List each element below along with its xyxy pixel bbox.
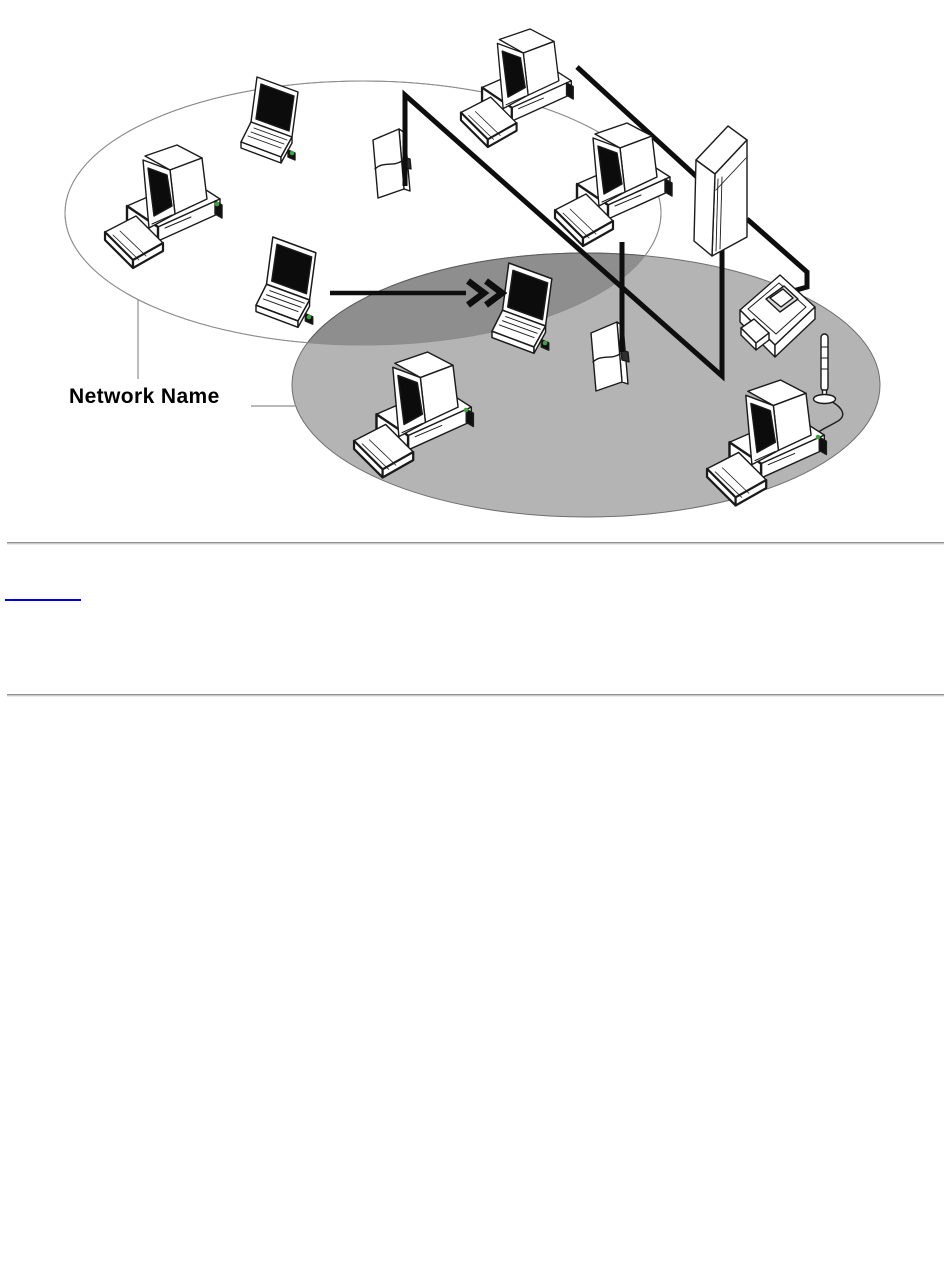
horizontal-rule-bottom	[7, 694, 944, 697]
network-name-label: Network Name	[69, 385, 220, 409]
adapter-connector-dot	[290, 151, 295, 156]
horizontal-rule-top	[7, 542, 944, 545]
adapter-connector-dot	[307, 315, 312, 320]
network-diagram	[0, 0, 950, 540]
network-diagram-figure: Network Name	[0, 0, 950, 540]
adapter-connector-dot	[816, 435, 821, 440]
tower-unit-icon	[694, 126, 747, 256]
adapter-connector-dot	[215, 202, 220, 207]
adapter-connector-dot	[543, 341, 548, 346]
empty-link-underline[interactable]	[5, 588, 81, 601]
adapter-connector-dot	[464, 408, 469, 413]
document-page: Network Name	[0, 0, 950, 1276]
